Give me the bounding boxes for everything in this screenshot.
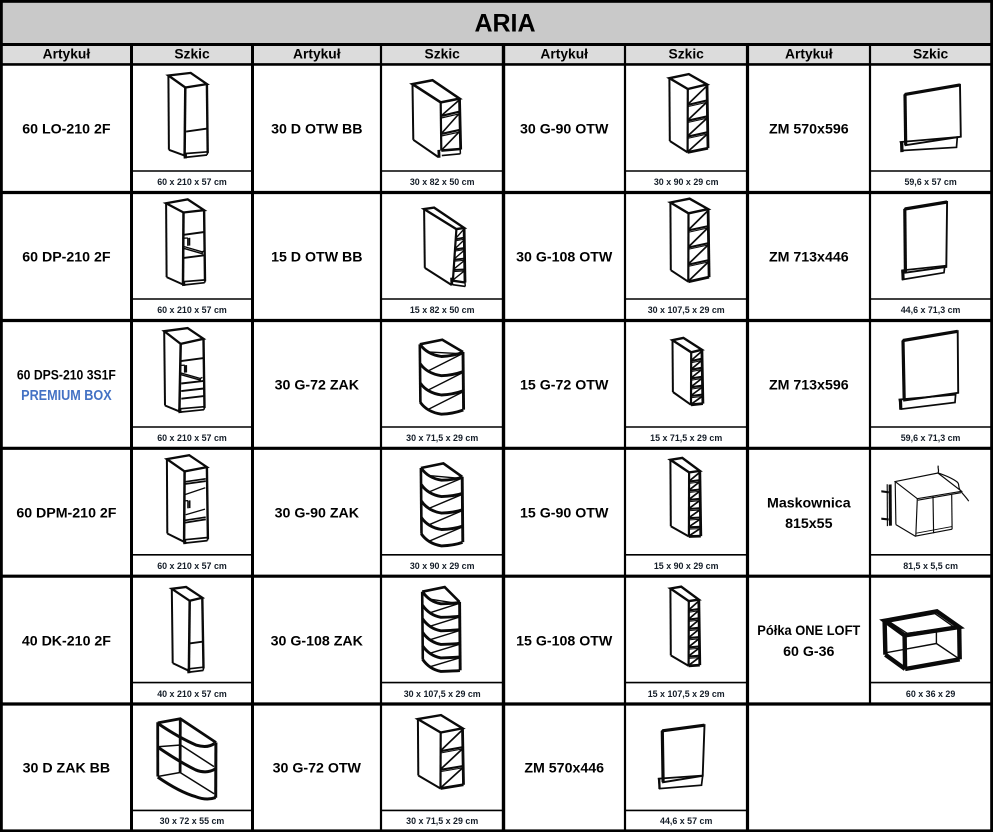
svg-text:44,6 x 57 cm: 44,6 x 57 cm xyxy=(660,816,712,826)
svg-text:44,6 x 71,3 cm: 44,6 x 71,3 cm xyxy=(901,305,961,315)
svg-text:60 x 210 x 57 cm: 60 x 210 x 57 cm xyxy=(157,433,227,443)
svg-text:30 G-108 OTW: 30 G-108 OTW xyxy=(516,250,613,266)
svg-text:59,6 x 57 cm: 59,6 x 57 cm xyxy=(904,177,956,187)
svg-text:60 DP-210 2F: 60 DP-210 2F xyxy=(22,250,111,266)
svg-text:60 DPS-210 3S1F: 60 DPS-210 3S1F xyxy=(17,368,116,384)
svg-text:15 G-72 OTW: 15 G-72 OTW xyxy=(520,378,609,394)
svg-text:Artykuł: Artykuł xyxy=(43,47,91,62)
svg-text:60 x 210 x 57 cm: 60 x 210 x 57 cm xyxy=(157,561,227,571)
svg-text:30 x 90 x 29 cm: 30 x 90 x 29 cm xyxy=(410,561,475,571)
svg-text:ARIA: ARIA xyxy=(474,10,535,38)
svg-text:ZM 713x446: ZM 713x446 xyxy=(769,250,849,266)
svg-text:30 x 82 x 50 cm: 30 x 82 x 50 cm xyxy=(410,177,475,187)
svg-text:15 D OTW BB: 15 D OTW BB xyxy=(271,250,362,266)
svg-text:30 x 72 x 55 cm: 30 x 72 x 55 cm xyxy=(160,816,225,826)
svg-text:15 x 71,5 x 29 cm: 15 x 71,5 x 29 cm xyxy=(650,433,722,443)
svg-text:60 G-36: 60 G-36 xyxy=(783,644,834,660)
svg-text:15 x 82 x 50 cm: 15 x 82 x 50 cm xyxy=(410,305,475,315)
svg-text:15 G-90 OTW: 15 G-90 OTW xyxy=(520,506,609,522)
svg-text:60 LO-210 2F: 60 LO-210 2F xyxy=(22,122,111,138)
svg-text:30 G-72 ZAK: 30 G-72 ZAK xyxy=(275,378,360,394)
svg-text:Szkic: Szkic xyxy=(425,47,461,62)
svg-text:30 D ZAK BB: 30 D ZAK BB xyxy=(23,760,111,776)
svg-text:Szkic: Szkic xyxy=(669,47,705,62)
svg-text:30 G-90 OTW: 30 G-90 OTW xyxy=(520,122,609,138)
svg-text:30 D OTW BB: 30 D OTW BB xyxy=(271,122,362,138)
svg-text:60 x 36 x 29: 60 x 36 x 29 xyxy=(906,689,955,699)
svg-text:ZM 570x596: ZM 570x596 xyxy=(769,122,849,138)
svg-text:59,6 x 71,3 cm: 59,6 x 71,3 cm xyxy=(901,433,961,443)
svg-text:15 G-108 OTW: 15 G-108 OTW xyxy=(516,633,613,649)
svg-text:Szkic: Szkic xyxy=(174,47,210,62)
svg-text:60 x 210 x 57 cm: 60 x 210 x 57 cm xyxy=(157,177,227,187)
svg-text:15 x 107,5 x 29 cm: 15 x 107,5 x 29 cm xyxy=(648,689,725,699)
svg-text:30 x 107,5 x 29 cm: 30 x 107,5 x 29 cm xyxy=(404,689,481,699)
svg-text:30 x 71,5 x 29 cm: 30 x 71,5 x 29 cm xyxy=(406,433,478,443)
svg-text:30 x 71,5 x 29 cm: 30 x 71,5 x 29 cm xyxy=(406,816,478,826)
svg-text:30 x 107,5 x 29 cm: 30 x 107,5 x 29 cm xyxy=(648,305,725,315)
svg-text:Maskownica: Maskownica xyxy=(767,495,851,511)
svg-text:Artykuł: Artykuł xyxy=(293,47,341,62)
svg-text:40 x 210 x 57 cm: 40 x 210 x 57 cm xyxy=(157,689,227,699)
svg-text:30 x 90 x 29 cm: 30 x 90 x 29 cm xyxy=(654,177,719,187)
svg-text:30 G-72 OTW: 30 G-72 OTW xyxy=(273,760,362,776)
svg-text:Artykuł: Artykuł xyxy=(540,47,588,62)
svg-text:81,5 x 5,5 cm: 81,5 x 5,5 cm xyxy=(903,561,958,571)
svg-text:60 DPM-210 2F: 60 DPM-210 2F xyxy=(16,506,116,522)
svg-text:Artykuł: Artykuł xyxy=(785,47,833,62)
svg-text:ZM 570x446: ZM 570x446 xyxy=(524,760,604,776)
svg-text:40 DK-210 2F: 40 DK-210 2F xyxy=(22,633,111,649)
svg-text:Szkic: Szkic xyxy=(913,47,949,62)
svg-text:815x55: 815x55 xyxy=(785,516,832,532)
svg-text:30 G-90 ZAK: 30 G-90 ZAK xyxy=(275,506,360,522)
svg-text:PREMIUM BOX: PREMIUM BOX xyxy=(21,387,112,404)
svg-text:ZM 713x596: ZM 713x596 xyxy=(769,378,849,394)
svg-text:15 x 90 x 29 cm: 15 x 90 x 29 cm xyxy=(654,561,719,571)
svg-text:Półka ONE LOFT: Półka ONE LOFT xyxy=(757,623,860,639)
svg-text:60 x 210 x 57 cm: 60 x 210 x 57 cm xyxy=(157,305,227,315)
svg-text:30 G-108 ZAK: 30 G-108 ZAK xyxy=(271,633,364,649)
